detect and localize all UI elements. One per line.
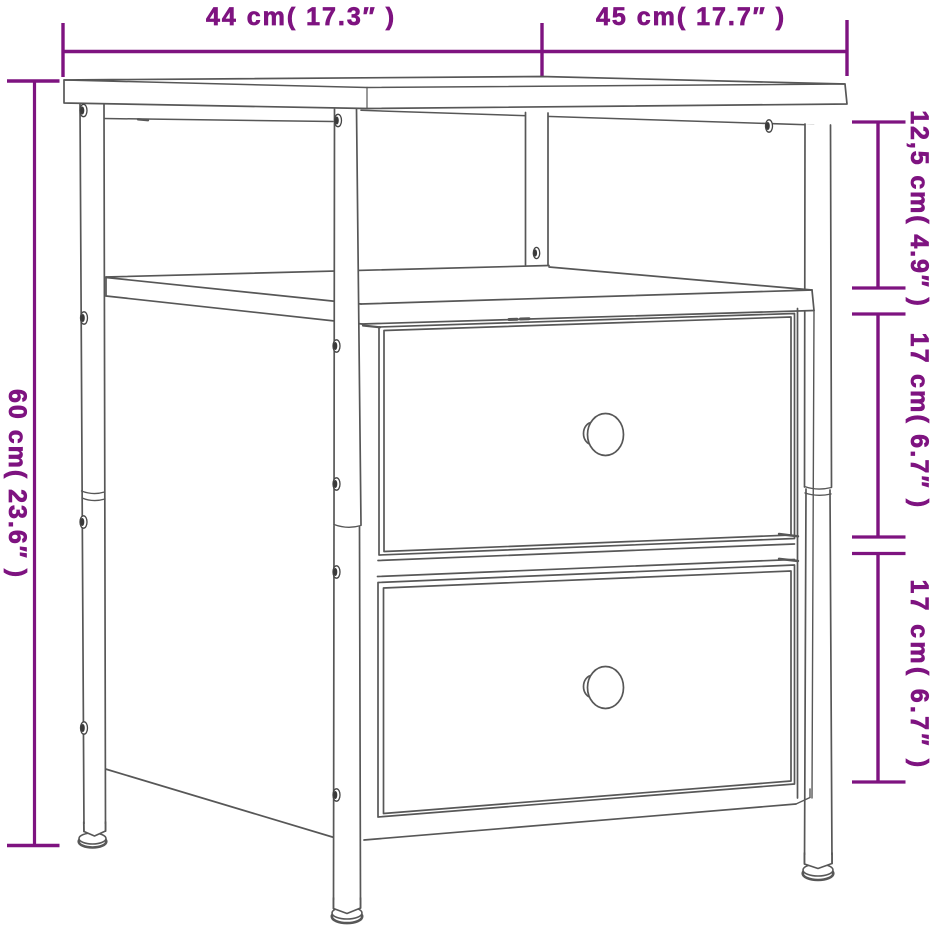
svg-text:17 cm( 6.7″ ): 17 cm( 6.7″ ) xyxy=(905,579,930,770)
svg-text:60 cm( 23.6″ ): 60 cm( 23.6″ ) xyxy=(3,389,31,579)
svg-text:17 cm( 6.7″ ): 17 cm( 6.7″ ) xyxy=(905,333,930,510)
svg-text:45 cm( 17.7″ ): 45 cm( 17.7″ ) xyxy=(596,3,786,31)
svg-text:44 cm( 17.3″ ): 44 cm( 17.3″ ) xyxy=(206,3,396,31)
svg-text:12,5 cm( 4.9″ ): 12,5 cm( 4.9″ ) xyxy=(905,110,930,308)
